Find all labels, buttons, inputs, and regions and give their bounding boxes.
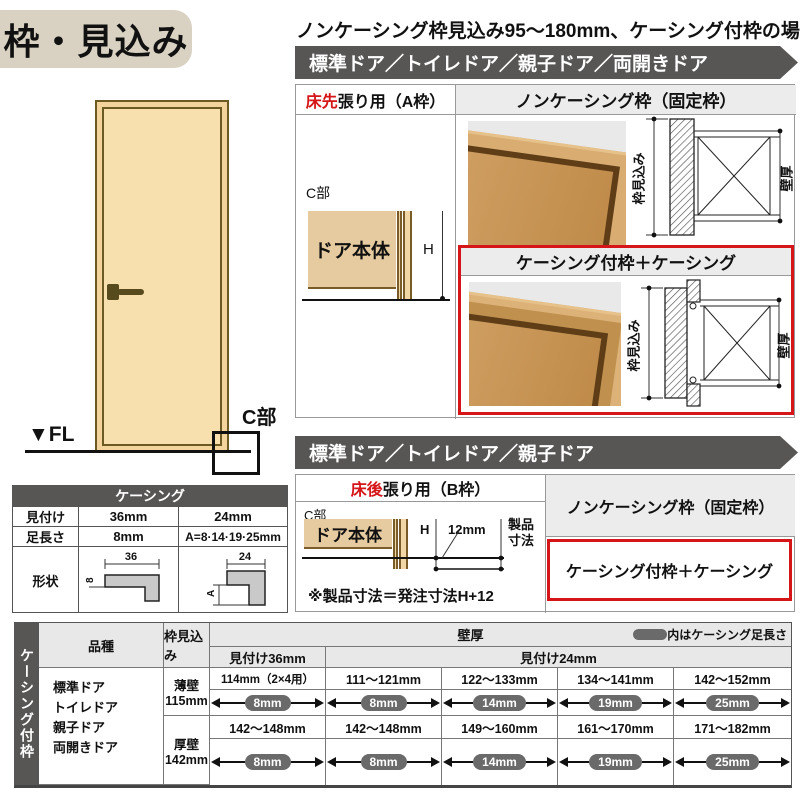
arrow-right-icon (431, 698, 440, 708)
dim-24-label: 24 (239, 551, 252, 563)
noncasing-option-cell: ノンケーシング枠（固定枠） (546, 475, 795, 537)
arrow-left-icon (327, 698, 336, 708)
c-part-callout-rect (212, 431, 260, 475)
col-header-type: 品種 (39, 623, 164, 668)
range-cell: 111～121mm (326, 668, 442, 690)
door-type-cell: 標準ドア トイレドア 親子ドア 両開きドア (39, 668, 164, 785)
casing-leg-badge: 8mm (361, 754, 407, 770)
noncasing-frame-photo (468, 121, 626, 245)
section-b-frame: 床後張り用（B枠） C部 ドア本体 H 12mm 製品寸法 ※製品寸法＝発注寸法… (295, 474, 795, 612)
door-type-item: トイレドア (53, 698, 118, 718)
arrow-right-icon (431, 757, 440, 767)
depth-value: 142mm (165, 753, 208, 767)
range-cell: 134～141mm (558, 668, 674, 690)
arrow-left-icon (327, 757, 336, 767)
section-b-header: 床後張り用（B枠） (296, 475, 545, 502)
wood-casing (469, 290, 621, 406)
arrow-right-icon (781, 698, 790, 708)
h-dimension-label: H (423, 241, 434, 258)
section-a-frame: 床先張り用（A枠） C部 ドア本体 H ノンケーシング枠（固定枠） (295, 84, 795, 418)
floor-level-label: ▼FL (28, 423, 74, 447)
dimension-dot (440, 296, 445, 301)
door-type-item: 両開きドア (53, 738, 118, 758)
face-36: 36mm (79, 507, 179, 526)
col-header-depth: 枠見込み (164, 623, 210, 668)
arrow-left-icon (443, 757, 452, 767)
legend: 内はケーシング足長さ (633, 626, 787, 643)
frame-section-drawing (627, 278, 791, 412)
casing-leg-badge: 19mm (589, 695, 642, 711)
page-title: 枠・見込み (0, 10, 192, 68)
casing-leg-badge: 8mm (245, 695, 291, 711)
arrow-left-icon (443, 698, 452, 708)
door-body-block: ドア本体 (308, 211, 396, 289)
casing-leg-badge: 19mm (589, 754, 642, 770)
range-cell: 142～148mm (326, 716, 442, 739)
range-cell: 122～133mm (442, 668, 558, 690)
headline: ノンケーシング枠見込み95～180mm、ケーシング付枠の場合 (296, 16, 800, 43)
sub-header-face36: 見付け36mm (210, 647, 326, 668)
wall-kind: 厚壁 (174, 734, 199, 753)
arrow-left-icon (675, 698, 684, 708)
leg-36: 8mm (79, 527, 179, 546)
range-cell: 142～148mm (210, 716, 326, 739)
legend-text: 内はケーシング足長さ (667, 626, 787, 643)
spec-row-shape: 形状 36 8 24 A (13, 547, 287, 613)
leg-cell: 19mm (558, 690, 674, 716)
catalog-page: 枠・見込み ノンケーシング枠見込み95～180mm、ケーシング付枠の場合 標準ド… (0, 0, 800, 800)
wood-door-panel (469, 318, 601, 406)
arrow-right-icon (547, 757, 556, 767)
casing-frame-header: ケーシング付枠＋ケーシング (461, 248, 791, 276)
arrow-right-icon (315, 757, 324, 767)
frame-b-label: 張り用（B枠） (383, 476, 491, 500)
wood-door-panel (468, 149, 614, 245)
arrow-left-icon (559, 698, 568, 708)
legend-pill-icon (633, 629, 667, 640)
banner-door-types-top: 標準ドア／トイレドア／親子ドア／両開きドア (295, 46, 798, 79)
frame-strip (403, 211, 412, 300)
casing-option-cell: ケーシング付枠＋ケーシング (547, 539, 792, 601)
door-handle-lever-icon (117, 289, 144, 295)
leg-cell: 25mm (674, 690, 791, 716)
floor-after-label: 床後 (351, 476, 383, 500)
col-header-wall: 壁厚 内はケーシング足長さ (210, 623, 791, 647)
arrow-left-icon (211, 757, 220, 767)
wall-thickness-dim-label: 壁厚 (777, 151, 796, 207)
casing-leg-badge: 14mm (473, 695, 526, 711)
range-cell: 114mm（2×4用） (210, 668, 326, 690)
dim-a-label: A (206, 590, 217, 597)
wood-frame (468, 129, 626, 245)
wall-kind: 薄壁 (174, 675, 199, 694)
frame-depth-dim-label: 枠見込み (629, 151, 648, 207)
leg-cell: 19mm (558, 739, 674, 785)
leg-cell: 14mm (442, 690, 558, 716)
arrow-right-icon (663, 698, 672, 708)
casing-shape-24: 24 A (183, 549, 283, 611)
frame-a-label: 張り用（A枠） (338, 88, 446, 112)
frame-strip (397, 211, 402, 300)
b-frame-drawing (296, 515, 546, 585)
range-cell: 142～152mm (674, 668, 791, 690)
door-illustration (95, 100, 229, 453)
casing-leg-badge: 25mm (706, 754, 759, 770)
spec-row-leg: 足長さ 8mm A=8·14·19·25mm (13, 527, 287, 547)
leg-cell: 8mm (326, 690, 442, 716)
casing-leg-badge: 25mm (706, 695, 759, 711)
arrow-right-icon (547, 698, 556, 708)
range-cell: 149～160mm (442, 716, 558, 739)
wall-thickness-table: ケーシング付枠 品種 枠見込み 壁厚 内はケーシング足長さ 見付け36mm 見付… (14, 622, 792, 788)
casing-leg-badge: 8mm (361, 695, 407, 711)
section-b-left-cell: 床後張り用（B枠） C部 ドア本体 H 12mm 製品寸法 ※製品寸法＝発注寸法… (296, 475, 546, 613)
depth-thin-cell: 薄壁 115mm (164, 668, 210, 716)
door-type-item: 標準ドア (53, 678, 118, 698)
spec-row-face: 見付け 36mm 24mm (13, 507, 287, 527)
door-type-item: 親子ドア (53, 718, 118, 738)
leg-24: A=8·14·19·25mm (179, 527, 287, 546)
section-a-left-cell: 床先張り用（A枠） C部 ドア本体 H (296, 85, 456, 419)
shape-24-cell: 24 A (179, 547, 287, 613)
sub-header-face24: 見付け24mm (326, 647, 791, 668)
banner-door-types-mid: 標準ドア／トイレドア／親子ドア (295, 436, 798, 469)
casing-leg-badge: 14mm (473, 754, 526, 770)
wall-thickness-dim-label: 壁厚 (774, 318, 793, 374)
leg-cell: 25mm (674, 739, 791, 785)
door-leaf (102, 107, 222, 446)
shape-36-cell: 36 8 (79, 547, 179, 613)
leg-cell: 8mm (210, 690, 326, 716)
arrow-left-icon (675, 757, 684, 767)
range-cell: 171～182mm (674, 716, 791, 739)
dim-36-label: 36 (124, 551, 136, 563)
leg-cell: 14mm (442, 739, 558, 785)
leg-cell: 8mm (326, 739, 442, 785)
floor-line (302, 299, 450, 301)
frame-section-drawing (630, 103, 794, 253)
casing-frame-photo (469, 282, 621, 406)
wood-groove (468, 143, 620, 245)
casing-frame-highlight-box: ケーシング付枠＋ケーシング (458, 245, 794, 415)
casing-leg-badge: 8mm (245, 754, 291, 770)
arrow-left-icon (559, 757, 568, 767)
arrow-right-icon (315, 698, 324, 708)
c-part-label: C部 (242, 401, 276, 430)
casing-spec-table: ケーシング 見付け 36mm 24mm 足長さ 8mm A=8·14·19·25… (12, 485, 288, 613)
depth-thick-cell: 厚壁 142mm (164, 716, 210, 785)
c-part-label: C部 (306, 183, 330, 203)
face-24: 24mm (179, 507, 287, 526)
arrow-right-icon (781, 757, 790, 767)
noncasing-frame-diagram: 枠見込み 壁厚 (630, 103, 794, 253)
casing-shape-36: 36 8 (81, 549, 177, 611)
leg-label: 足長さ (13, 527, 79, 546)
face-label: 見付け (13, 507, 79, 526)
casing-spec-title: ケーシング (13, 486, 287, 507)
depth-value: 115mm (165, 694, 207, 708)
arrow-right-icon (663, 757, 672, 767)
table-side-label: ケーシング付枠 (15, 623, 39, 785)
h-dimension-line (442, 211, 443, 299)
dim-8-label: 8 (85, 577, 96, 583)
arrow-left-icon (211, 698, 220, 708)
shape-label: 形状 (13, 547, 79, 613)
leg-cell: 8mm (210, 739, 326, 785)
range-cell: 161～170mm (558, 716, 674, 739)
product-dimension-note: ※製品寸法＝発注寸法H+12 (308, 585, 494, 606)
frame-depth-dim-label: 枠見込み (624, 318, 643, 374)
floor-first-label: 床先 (306, 88, 338, 112)
section-a-header: 床先張り用（A枠） (296, 85, 455, 115)
casing-frame-diagram: 枠見込み 壁厚 (627, 278, 791, 412)
